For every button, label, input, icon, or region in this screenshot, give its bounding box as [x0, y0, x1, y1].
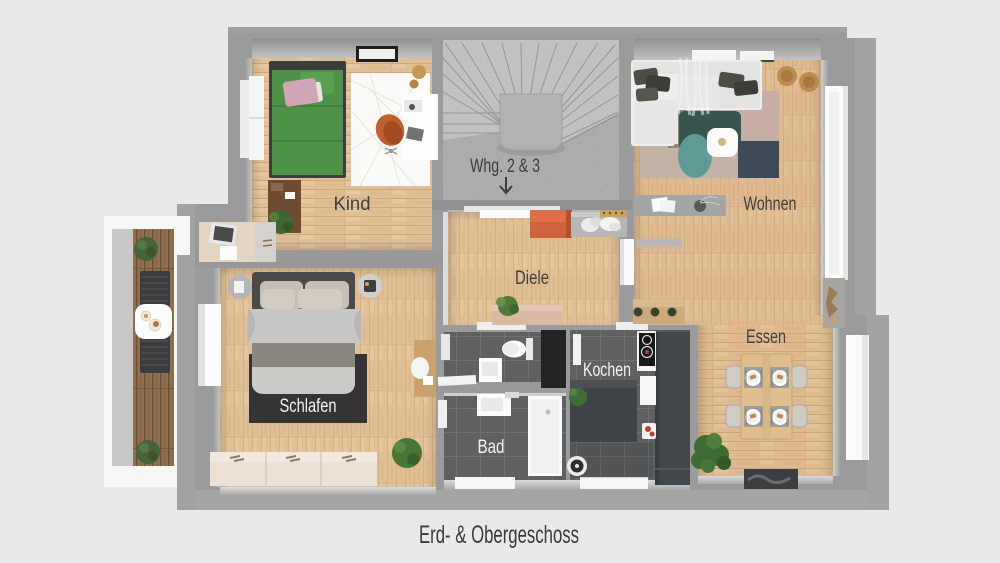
svg-text:Schlafen: Schlafen — [280, 396, 337, 417]
svg-text:Kind: Kind — [334, 194, 371, 215]
svg-text:Essen: Essen — [746, 327, 786, 348]
svg-text:Wohnen: Wohnen — [744, 194, 797, 215]
svg-text:Bad: Bad — [478, 437, 505, 458]
svg-text:Whg. 2 & 3: Whg. 2 & 3 — [470, 156, 540, 177]
svg-text:Erd- & Obergeschoss: Erd- & Obergeschoss — [419, 521, 579, 549]
svg-text:Diele: Diele — [515, 268, 549, 289]
svg-text:Kochen: Kochen — [583, 360, 631, 381]
